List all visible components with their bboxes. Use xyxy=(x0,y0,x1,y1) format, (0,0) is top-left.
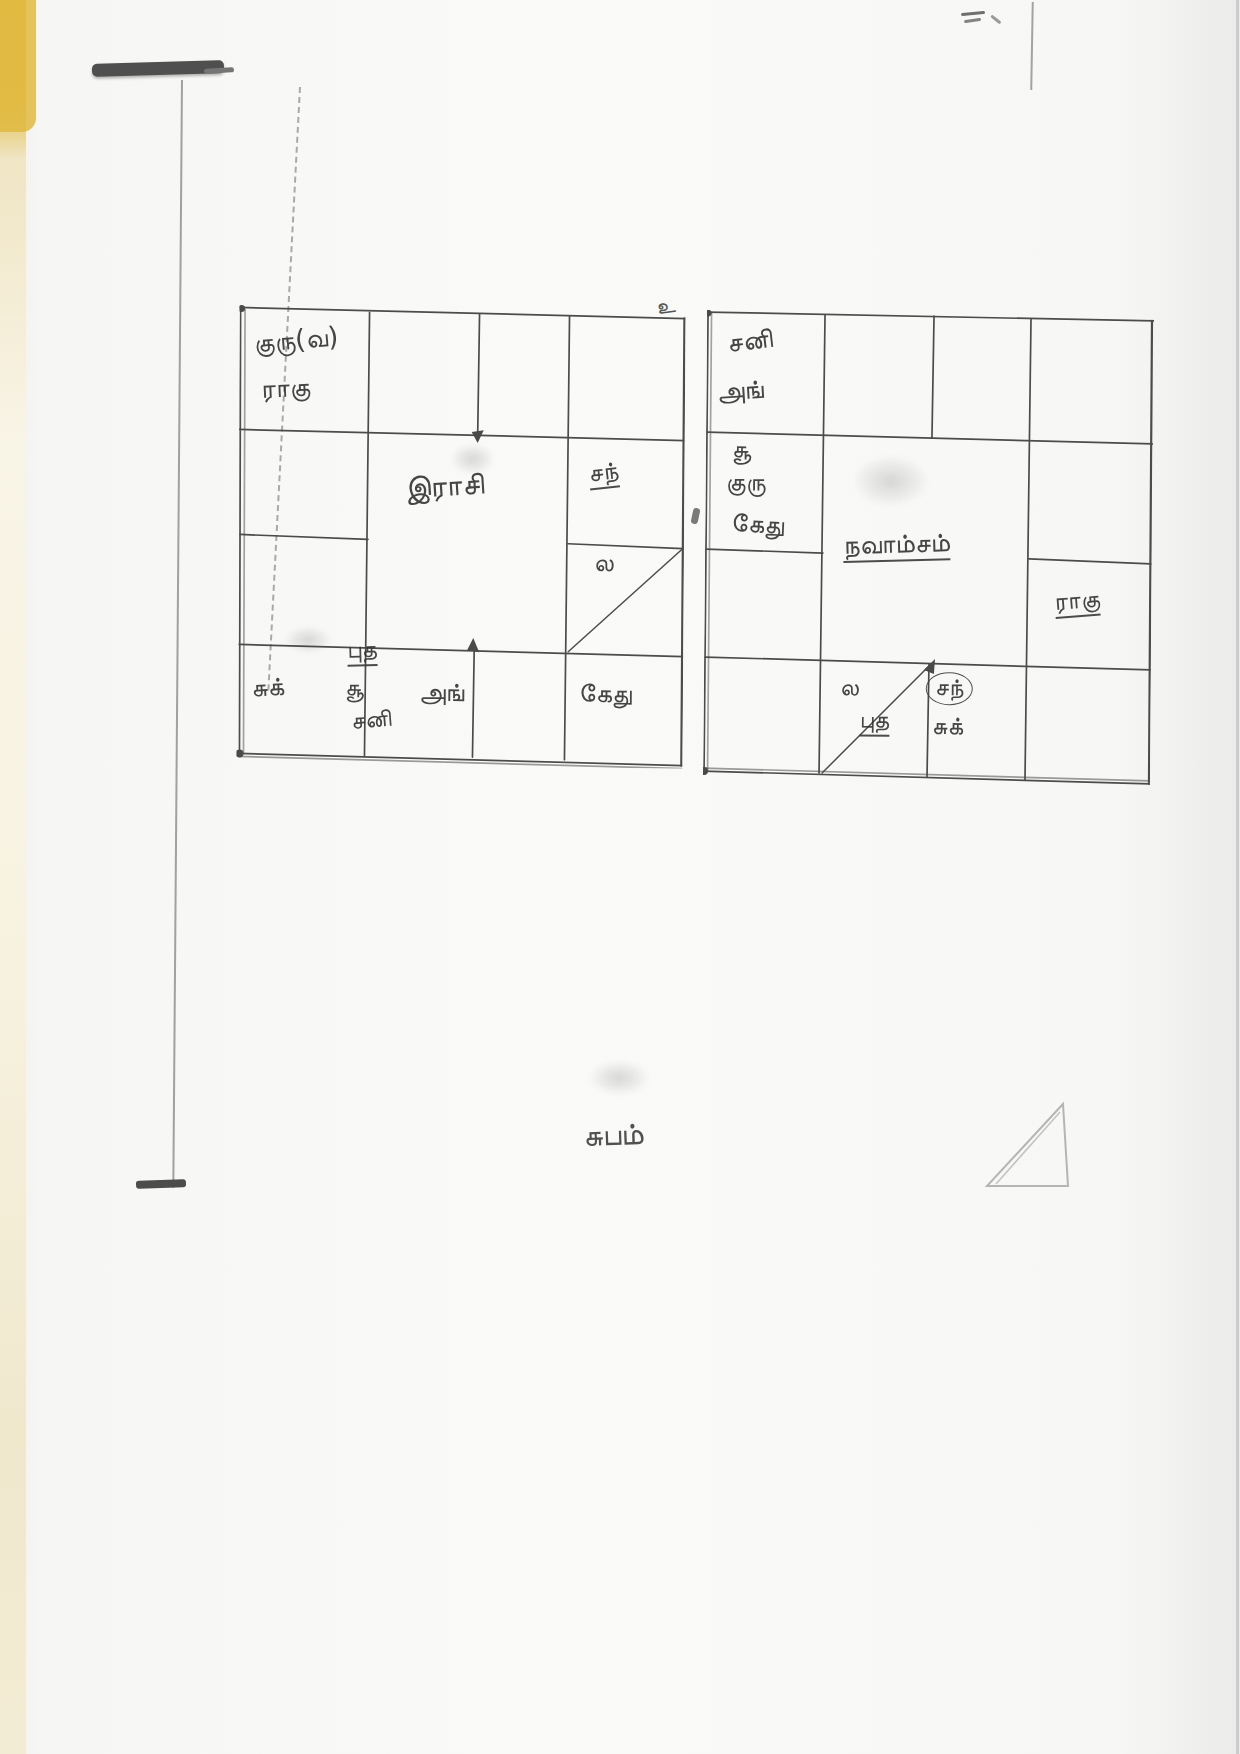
stray-pen-mark xyxy=(690,507,700,524)
navamsam-sukra-label: சுக் xyxy=(931,713,963,738)
top-right-pen-mark xyxy=(991,15,1002,24)
left-margin-line xyxy=(172,80,183,1188)
rasi-chandra-label: சந் xyxy=(587,457,620,490)
navamsam-surya-label: சூ xyxy=(732,436,752,461)
rasi-chart: குரு(வ) ராகு இராசி சந் ல சுக் புத சூ சனி… xyxy=(236,303,685,768)
rasi-guru-label: குரு(வ) xyxy=(252,322,339,356)
navamsam-sani-label: சனி xyxy=(725,324,773,356)
navamsam-lagna-label: ல xyxy=(840,675,859,699)
top-right-pen-mark xyxy=(964,18,981,23)
left-edge-yellow-strip xyxy=(0,0,26,1754)
navamsam-budha-label: புத xyxy=(859,707,889,736)
rasi-ketu-label: கேது xyxy=(579,680,632,706)
rasi-sukra-label: சுக் xyxy=(250,673,285,701)
rasi-sani-label: சனி xyxy=(350,706,392,733)
top-left-yellow-patch xyxy=(0,0,36,132)
navamsam-chandra-label: சந் xyxy=(926,672,973,705)
top-left-ink-smudge-tail xyxy=(204,67,234,74)
margin-line-bottom-tick xyxy=(136,1179,186,1189)
closing-blessing: சுபம் xyxy=(582,1115,644,1154)
navamsam-chart: சனி அங் சூ குரு கேது நவாம்சம் ராகு ல புத… xyxy=(703,310,1154,786)
navamsam-ketu-label: கேது xyxy=(731,509,785,537)
bottom-right-triangle-mark xyxy=(982,1100,1074,1192)
navamsam-title: நவாம்சம் xyxy=(843,528,951,563)
rasi-angaraka-label: அங் xyxy=(419,679,465,705)
rasi-title: இராசி xyxy=(403,468,484,503)
scanned-horoscope-page: உ xyxy=(0,0,1240,1754)
navamsam-guru-label: குரு xyxy=(725,468,765,494)
navamsam-angaraka-label: அங் xyxy=(716,375,765,405)
top-right-edge-line xyxy=(1030,2,1034,90)
rasi-budha-label: புத xyxy=(347,637,378,667)
navamsam-rahu-label: ராகு xyxy=(1053,586,1101,619)
rasi-rahu-label: ராகு xyxy=(260,373,310,402)
rasi-surya-label: சூ xyxy=(345,675,364,699)
smudge-blob xyxy=(588,1060,650,1096)
rasi-lagna-label: ல xyxy=(594,550,614,575)
top-right-pen-mark xyxy=(961,11,985,16)
right-edge-scan-line xyxy=(1236,0,1239,1754)
